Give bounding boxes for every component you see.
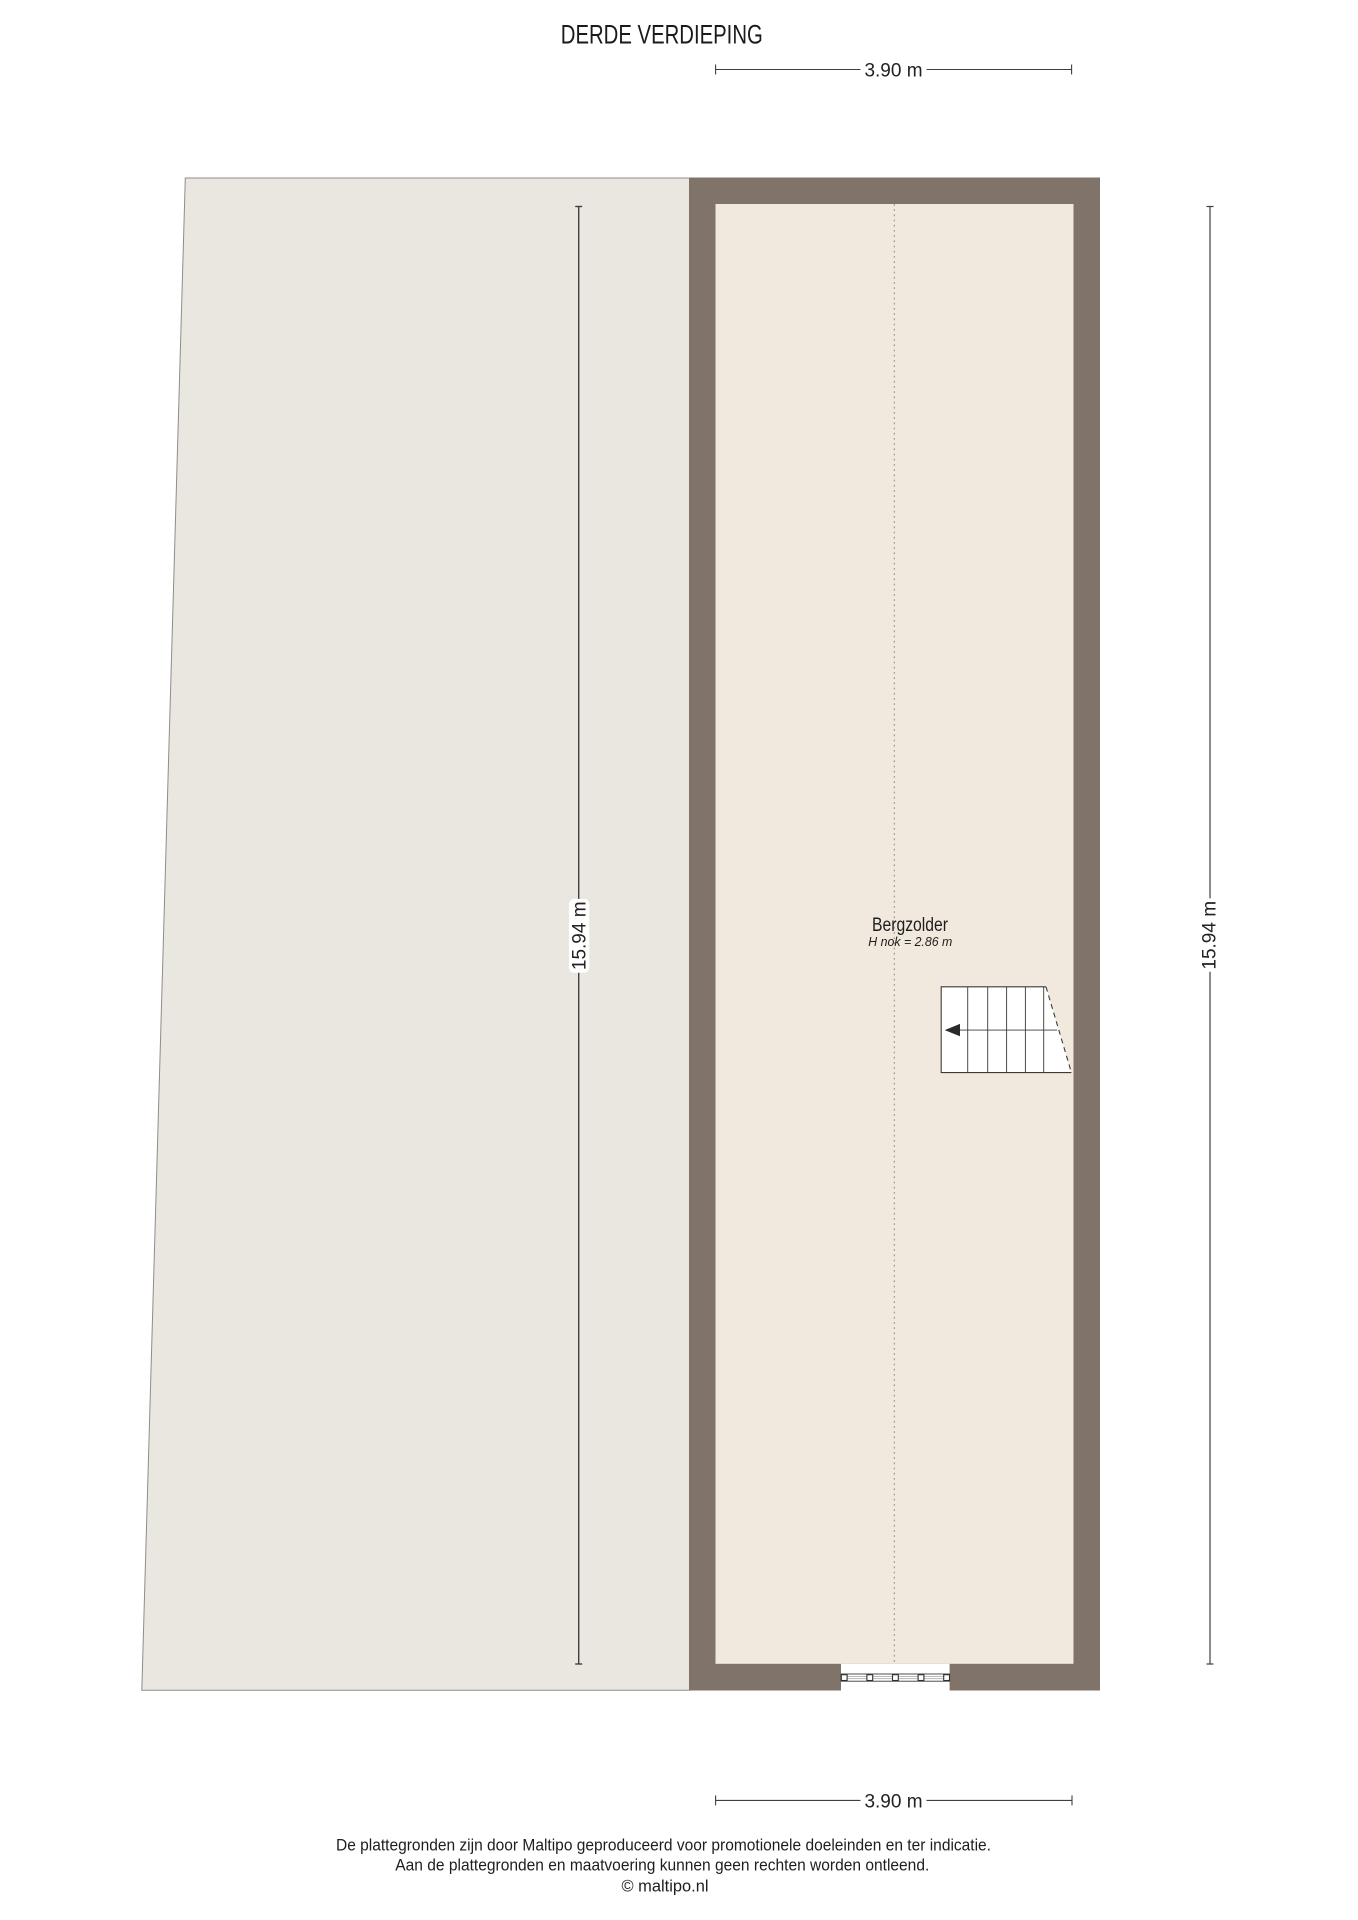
svg-text:DERDE VERDIEPING: DERDE VERDIEPING [561,19,763,49]
svg-text:Aan de plattegronden en maatvo: Aan de plattegronden en maatvoering kunn… [395,1855,929,1874]
svg-text:© maltipo.nl: © maltipo.nl [622,1876,709,1895]
svg-text:3.90 m: 3.90 m [864,1792,922,1813]
svg-text:Bergzolder: Bergzolder [872,914,948,936]
svg-text:H nok = 2.86 m: H nok = 2.86 m [868,934,952,949]
svg-text:15.94 m: 15.94 m [1199,901,1220,970]
svg-text:3.90 m: 3.90 m [864,60,922,81]
svg-text:15.94 m: 15.94 m [569,901,590,970]
svg-text:De plattegronden zijn door Mal: De plattegronden zijn door Maltipo gepro… [336,1836,991,1855]
